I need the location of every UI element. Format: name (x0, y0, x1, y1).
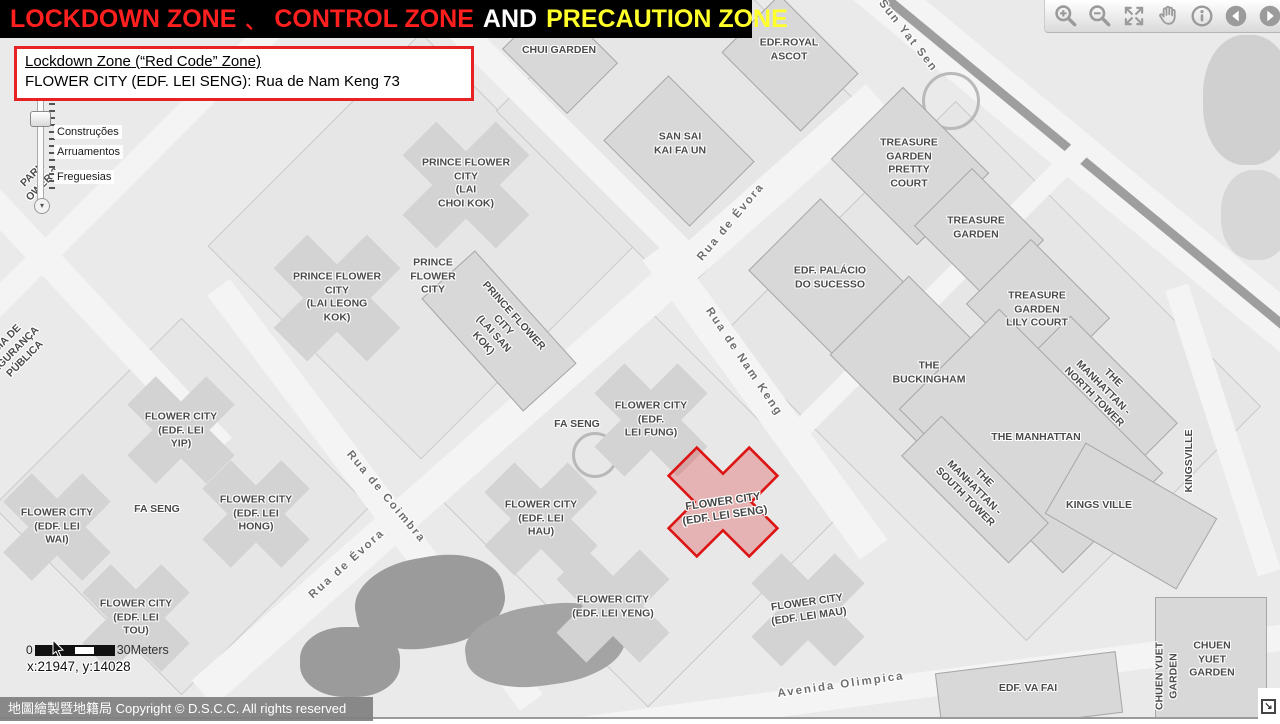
chuen-yuet-garden-vertical-label: CHUEN YUET GARDEN (1153, 642, 1180, 710)
info-zone-type: Lockdown Zone (“Red Code” Zone) (25, 52, 463, 72)
identify-info-icon (1189, 3, 1215, 29)
zoom-out-icon (1087, 3, 1113, 29)
mouse-cursor-icon (52, 640, 66, 658)
the-buckingham-label: THE BUCKINGHAM (893, 359, 966, 386)
zoom-slider-handle[interactable] (30, 111, 51, 127)
map-feature (1221, 170, 1280, 260)
chuen-yuet-garden-label: CHUEN YUET GARDEN (1189, 640, 1235, 681)
info-address: FLOWER CITY (EDF. LEI SENG): Rua de Nam … (25, 72, 463, 92)
flower-city-edf-lei-yip-label: FLOWER CITY (EDF. LEI YIP) (145, 411, 217, 452)
previous-extent-icon (1223, 3, 1249, 29)
zoom-level-construções: Construções (54, 125, 122, 139)
scale-bar-graphic (35, 645, 115, 656)
scale-bar-end: 30Meters (117, 643, 169, 657)
chui-garden-label: CHUI GARDEN (522, 44, 596, 58)
zoom-slider-tick (49, 103, 55, 105)
flower-city-edf-lei-yeng-label: FLOWER CITY (EDF. LEI YENG) (572, 593, 653, 620)
the-manhattan-label: THE MANHATTAN (991, 431, 1080, 445)
treasure-garden-pretty-court-label: TREASURE GARDEN PRETTY COURT (880, 137, 938, 192)
lockdown-info-box: Lockdown Zone (“Red Code” Zone) FLOWER C… (14, 46, 474, 101)
treasure-garden-label: TREASURE GARDEN (947, 214, 1005, 241)
next-extent-icon (1257, 3, 1280, 29)
title-banner: LOCKDOWN ZONE 、 CONTROL ZONE AND PRECAUT… (0, 0, 752, 38)
scale-bar-start: 0 (26, 643, 33, 657)
edf-palacio-do-sucesso-label: EDF. PALÁCIO DO SUCESSO (794, 264, 866, 291)
fa-seng-central-label: FA SENG (554, 418, 600, 432)
zoom-slider-tick (49, 187, 55, 189)
kingsville-vertical-label: KINGSVILLE (1183, 429, 1197, 492)
identify-button[interactable] (1189, 2, 1215, 30)
fa-seng-west-label: FA SENG (134, 503, 180, 517)
zoom-in-icon (1053, 3, 1079, 29)
zoom-in-button[interactable] (1053, 2, 1079, 30)
flower-city-edf-lei-wai-label: FLOWER CITY (EDF. LEI WAI) (21, 507, 93, 548)
edf-va-fai-label: EDF. VA FAI (999, 682, 1057, 696)
prince-flower-city-lai-leong-kok-label: PRINCE FLOWER CITY (LAI LEONG KOK) (293, 271, 381, 326)
cursor-coordinates: x:21947, y:14028 (27, 659, 131, 674)
full-extent-button[interactable] (1121, 2, 1147, 30)
previous-extent-button[interactable] (1223, 2, 1249, 30)
title-separator: 、 (245, 5, 265, 34)
zoom-out-button[interactable] (1087, 2, 1113, 30)
next-extent-button[interactable] (1257, 2, 1280, 30)
zoom-slider-tick (49, 166, 55, 168)
san-sai-kai-fa-un-label: SAN SAI KAI FA UN (654, 130, 706, 157)
pan-hand-icon (1155, 3, 1181, 29)
zoom-slider-track[interactable] (37, 90, 44, 209)
policia-seguranca-publica-label: ÍCIA DE EGURANÇA PÚBLICA (0, 314, 52, 386)
kings-ville-label: KINGS VILLE (1066, 499, 1132, 513)
title-control-zone: CONTROL ZONE (274, 5, 474, 34)
map-feature (300, 627, 400, 697)
resize-corner-button[interactable]: ↘ (1261, 699, 1276, 714)
flower-city-edf-lei-hong-label: FLOWER CITY (EDF. LEI HONG) (220, 494, 292, 535)
flower-city-edf-lei-tou-label: FLOWER CITY (EDF. LEI TOU) (100, 598, 172, 639)
scale-bar: 0 30Meters (26, 643, 169, 657)
zoom-level-arruamentos: Arruamentos (54, 145, 123, 159)
prince-flower-city-lai-choi-kok-label: PRINCE FLOWER CITY (LAI CHOI KOK) (422, 157, 510, 212)
map-toolbar (1044, 0, 1280, 33)
treasure-garden-lily-court-label: TREASURE GARDEN LILY COURT (1006, 290, 1068, 331)
zoom-slider-down-button[interactable]: ▾ (34, 198, 50, 214)
copyright-bar: 地圖繪製暨地籍局 Copyright © D.S.C.C. All rights… (0, 697, 373, 721)
zoom-slider-tick (49, 159, 55, 161)
zoom-level-freguesias: Freguesias (54, 170, 114, 184)
map-viewport[interactable]: CHUI GARDENEDF.ROYAL ASCOTSAN SAI KAI FA… (0, 0, 1280, 724)
full-extent-icon (1121, 3, 1147, 29)
flower-city-edf-lei-fung-label: FLOWER CITY (EDF. LEI FUNG) (615, 400, 687, 441)
pan-button[interactable] (1155, 2, 1181, 30)
map-feature (1203, 35, 1280, 165)
title-precaution-zone: PRECAUTION ZONE (546, 5, 788, 34)
title-lockdown-zone: LOCKDOWN ZONE (10, 5, 236, 34)
title-and: AND (483, 5, 537, 34)
edf-royal-ascot-label: EDF.ROYAL ASCOT (760, 36, 819, 63)
prince-flower-city-label: PRINCE FLOWER CITY (410, 257, 456, 298)
flower-city-edf-lei-hau-label: FLOWER CITY (EDF. LEI HAU) (505, 499, 577, 540)
